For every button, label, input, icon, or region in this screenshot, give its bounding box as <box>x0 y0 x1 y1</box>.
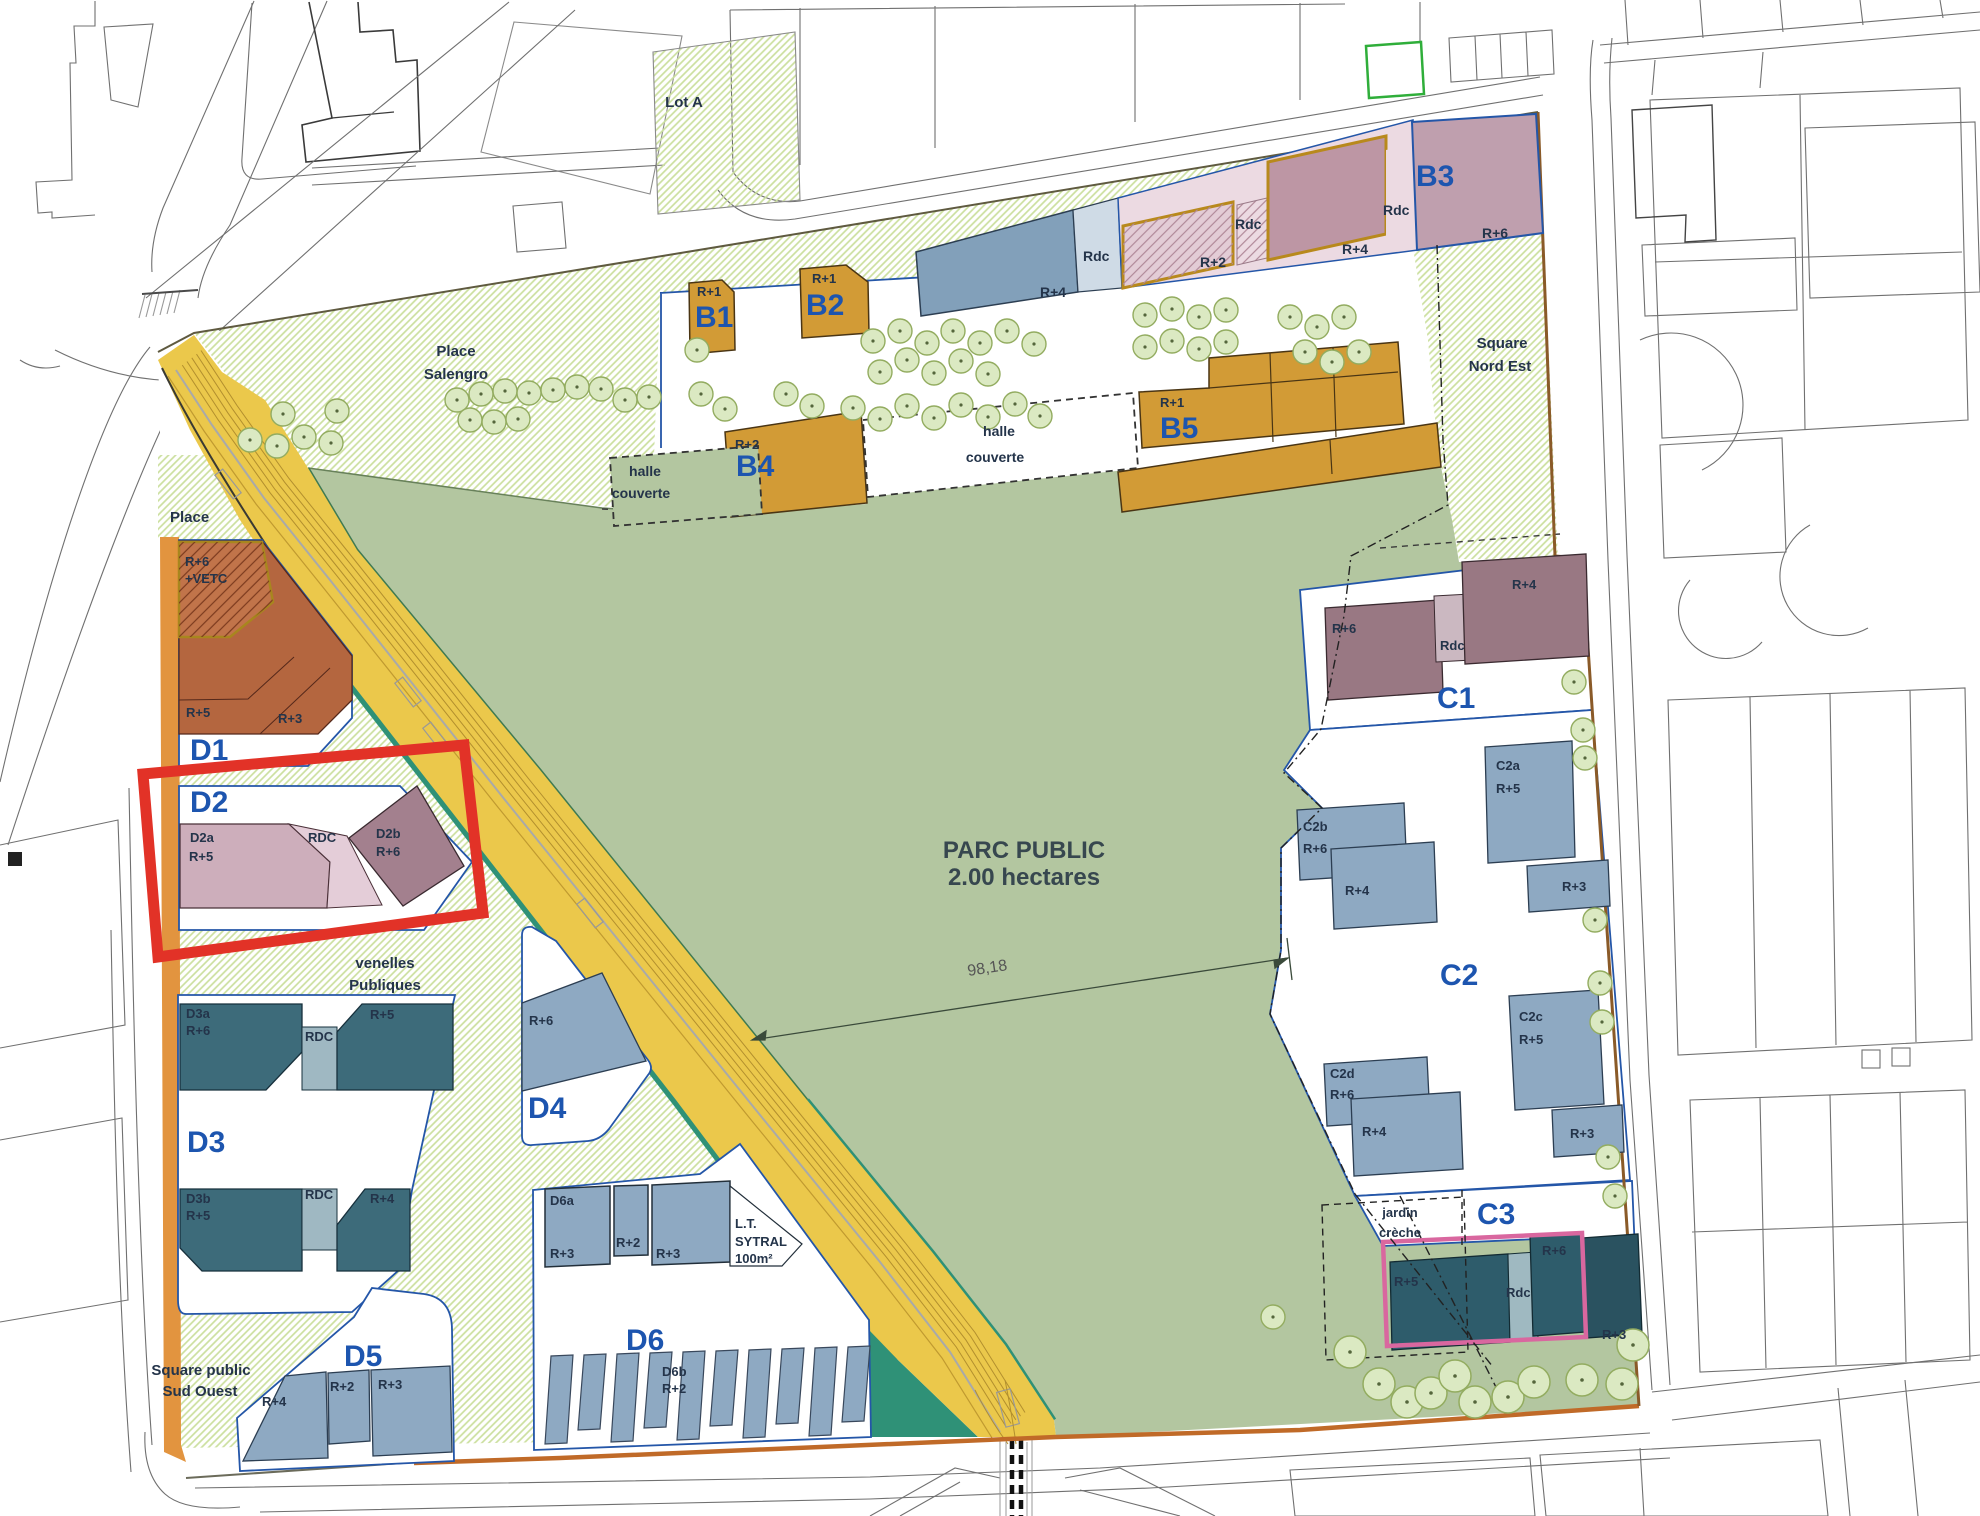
svg-text:R+3: R+3 <box>278 711 302 726</box>
svg-text:R+2: R+2 <box>735 437 759 452</box>
svg-text:halle: halle <box>983 423 1015 439</box>
svg-text:crèche: crèche <box>1379 1225 1421 1240</box>
svg-text:D6b: D6b <box>662 1364 687 1379</box>
svg-text:R+6: R+6 <box>186 1023 210 1038</box>
svg-text:R+5: R+5 <box>186 705 210 720</box>
svg-text:R+4: R+4 <box>1512 577 1537 592</box>
svg-text:D3a: D3a <box>186 1006 211 1021</box>
svg-text:D5: D5 <box>344 1340 382 1373</box>
svg-text:Rdc: Rdc <box>1383 202 1410 218</box>
svg-text:+VETC: +VETC <box>185 571 228 586</box>
svg-text:Square public: Square public <box>151 1362 250 1379</box>
svg-text:PARC PUBLIC: PARC PUBLIC <box>943 837 1105 864</box>
svg-text:C1: C1 <box>1437 682 1475 715</box>
svg-text:R+4: R+4 <box>1342 241 1368 257</box>
svg-text:D3: D3 <box>187 1126 225 1159</box>
svg-text:Publiques: Publiques <box>349 977 421 994</box>
svg-text:R+5: R+5 <box>1519 1032 1543 1047</box>
svg-text:100m²: 100m² <box>735 1251 773 1266</box>
svg-text:C2d: C2d <box>1330 1066 1355 1081</box>
svg-text:R+6: R+6 <box>1482 225 1508 241</box>
svg-text:jardin: jardin <box>1381 1205 1417 1220</box>
svg-text:R+3: R+3 <box>656 1246 680 1261</box>
svg-text:R+1: R+1 <box>1160 395 1184 410</box>
svg-text:R+6: R+6 <box>185 554 209 569</box>
svg-text:R+6: R+6 <box>376 844 400 859</box>
svg-text:SYTRAL: SYTRAL <box>735 1234 787 1249</box>
svg-text:Sud Ouest: Sud Ouest <box>162 1383 237 1400</box>
svg-text:R+6: R+6 <box>1542 1243 1566 1258</box>
svg-text:R+6: R+6 <box>529 1013 553 1028</box>
svg-text:Place: Place <box>170 509 209 526</box>
svg-text:halle: halle <box>629 463 661 479</box>
svg-text:Lot A: Lot A <box>665 94 703 111</box>
svg-text:RDC: RDC <box>308 830 337 845</box>
svg-text:D2b: D2b <box>376 826 401 841</box>
svg-text:D2a: D2a <box>190 830 215 845</box>
svg-text:B1: B1 <box>695 301 733 334</box>
svg-text:couverte: couverte <box>612 485 671 501</box>
svg-text:R+3: R+3 <box>378 1377 402 1392</box>
svg-text:B5: B5 <box>1160 412 1198 445</box>
svg-text:D6: D6 <box>626 1324 664 1357</box>
svg-text:R+6: R+6 <box>1303 841 1327 856</box>
svg-text:R+1: R+1 <box>812 271 836 286</box>
svg-text:RDC: RDC <box>305 1187 334 1202</box>
svg-text:C3: C3 <box>1477 1198 1515 1231</box>
svg-text:Rdc: Rdc <box>1235 216 1262 232</box>
svg-text:D2: D2 <box>190 786 228 819</box>
svg-text:R+5: R+5 <box>1394 1274 1418 1289</box>
svg-text:R+2: R+2 <box>616 1235 640 1250</box>
svg-text:C2: C2 <box>1440 959 1478 992</box>
svg-text:couverte: couverte <box>966 449 1025 465</box>
svg-text:RDC: RDC <box>305 1029 334 1044</box>
svg-text:D6a: D6a <box>550 1193 575 1208</box>
svg-text:C2c: C2c <box>1519 1009 1543 1024</box>
svg-text:R+6: R+6 <box>1332 621 1356 636</box>
svg-text:R+2: R+2 <box>330 1379 354 1394</box>
svg-text:R+2: R+2 <box>1200 254 1226 270</box>
svg-text:R+6: R+6 <box>1330 1087 1354 1102</box>
svg-text:B4: B4 <box>736 450 775 483</box>
svg-text:Rdc: Rdc <box>1083 248 1110 264</box>
svg-text:Salengro: Salengro <box>424 366 488 383</box>
svg-text:C2b: C2b <box>1303 819 1328 834</box>
svg-text:R+2: R+2 <box>662 1381 686 1396</box>
svg-text:R+5: R+5 <box>1496 781 1520 796</box>
svg-text:C2a: C2a <box>1496 758 1521 773</box>
svg-text:R+3: R+3 <box>1602 1327 1626 1342</box>
svg-text:2.00 hectares: 2.00 hectares <box>948 864 1100 891</box>
svg-text:L.T.: L.T. <box>735 1216 757 1231</box>
svg-text:venelles: venelles <box>355 955 414 972</box>
svg-text:D3b: D3b <box>186 1191 211 1206</box>
svg-text:R+5: R+5 <box>370 1007 394 1022</box>
svg-text:B2: B2 <box>806 289 844 322</box>
svg-text:R+4: R+4 <box>1345 883 1370 898</box>
svg-text:R+3: R+3 <box>1570 1126 1594 1141</box>
svg-text:R+5: R+5 <box>186 1208 210 1223</box>
svg-text:D1: D1 <box>190 734 228 767</box>
svg-text:R+5: R+5 <box>189 849 213 864</box>
svg-text:D4: D4 <box>528 1092 567 1125</box>
svg-text:R+4: R+4 <box>370 1191 395 1206</box>
svg-text:R+4: R+4 <box>1362 1124 1387 1139</box>
svg-text:R+4: R+4 <box>1040 284 1066 300</box>
svg-text:B3: B3 <box>1416 160 1454 193</box>
svg-text:Place: Place <box>436 343 475 360</box>
svg-text:R+4: R+4 <box>262 1394 287 1409</box>
svg-text:R+1: R+1 <box>697 284 721 299</box>
svg-text:R+3: R+3 <box>1562 879 1586 894</box>
svg-text:R+3: R+3 <box>550 1246 574 1261</box>
svg-text:Nord Est: Nord Est <box>1469 358 1532 375</box>
svg-text:Square: Square <box>1477 335 1528 352</box>
svg-text:Rdc: Rdc <box>1506 1285 1531 1300</box>
svg-text:Rdc: Rdc <box>1440 638 1465 653</box>
